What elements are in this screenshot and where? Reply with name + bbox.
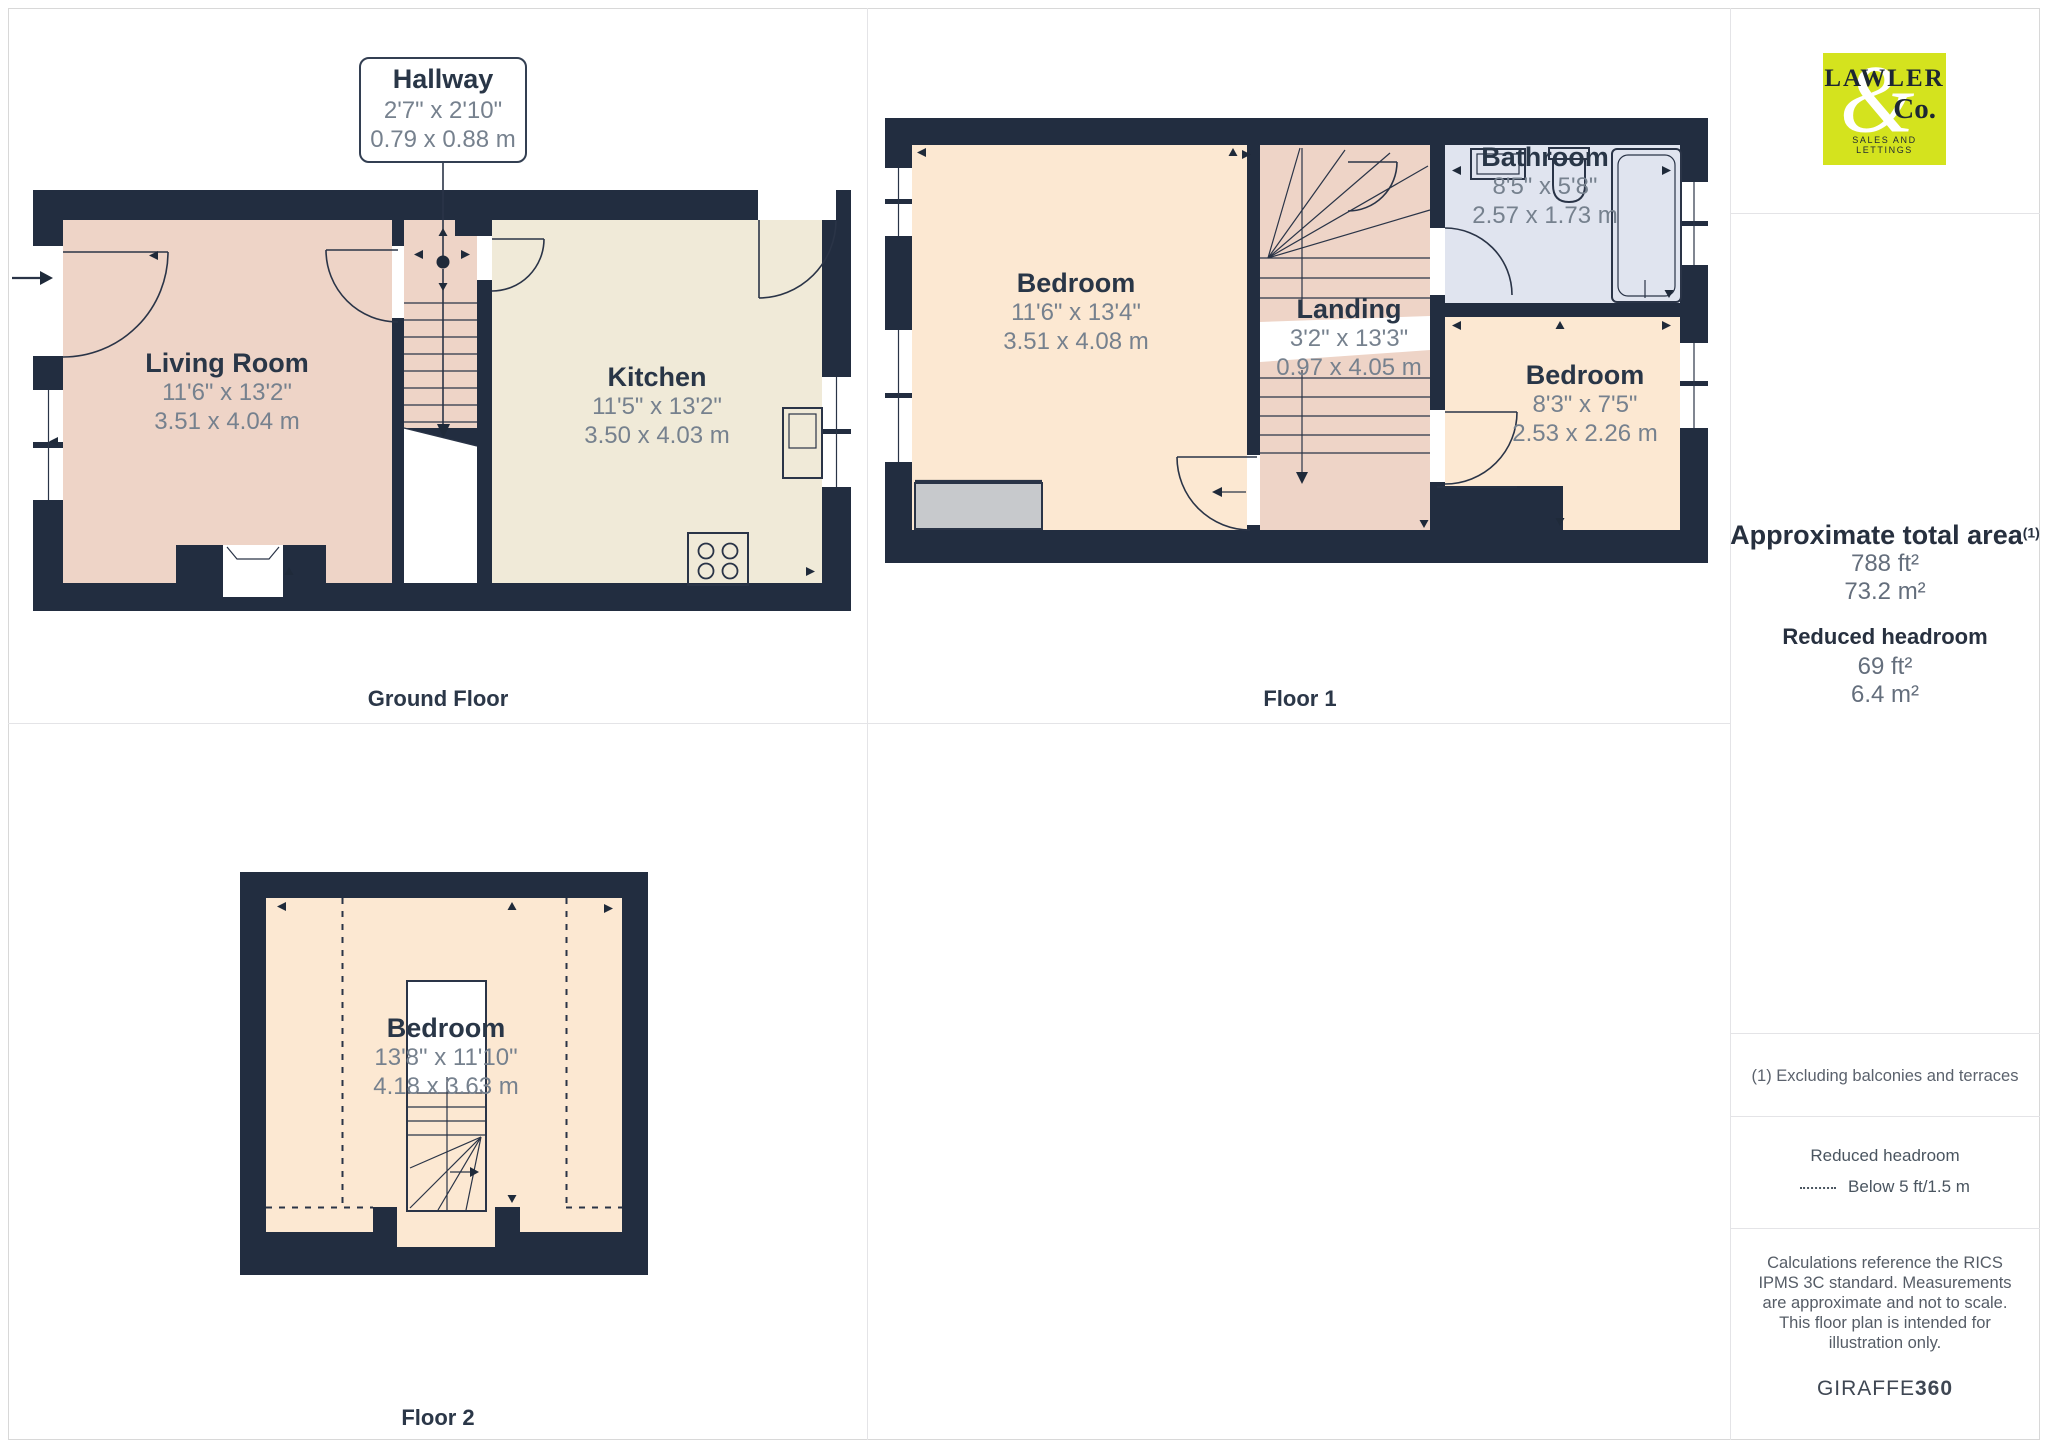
floor-title-1: Floor 1 [1263,686,1336,712]
reduced-m: 6.4 m² [1851,681,1919,709]
front-door-opening [33,246,63,356]
giraffe360-brand: GIRAFFE360 [1817,1377,1953,1401]
bedroom2-door-opening [1430,410,1445,482]
logo-co: Co. [1893,93,1936,126]
dormer-roof [915,483,1042,529]
hallway-dims-ft: 2'7" x 2'10" [361,96,525,125]
legend-value: Below 5 ft/1.5 m [1848,1177,1970,1196]
agency-logo: & LAWLER Co. SALES AND LETTINGS [1823,53,1946,165]
room-label-bedroom-1: Bedroom 11'6" x 13'4" 3.51 x 4.08 m [1003,268,1148,356]
back-door-opening [758,190,836,220]
bathroom-door-opening [1430,228,1445,295]
dotted-line-icon [1800,1187,1836,1189]
hallway-callout: Hallway 2'7" x 2'10" 0.79 x 0.88 m [359,57,527,163]
chimney-breast-floor1 [1433,486,1563,530]
floor-title-2: Floor 2 [401,1405,474,1431]
room-label-bathroom: Bathroom 8'5" x 5'8" 2.57 x 1.73 m [1472,142,1617,230]
room-label-landing: Landing 3'2" x 13'3" 0.97 x 4.05 m [1276,294,1421,382]
hallway-dims-m: 0.79 x 0.88 m [361,125,525,154]
floorplan-graphics [0,0,2048,1448]
kitchen-door-opening [477,236,492,280]
room-label-bedroom-2: Bedroom 8'3" x 7'5" 2.53 x 2.26 m [1512,360,1657,448]
room-label-bedroom-3: Bedroom 13'8" x 11'10" 4.18 x 3.63 m [373,1013,518,1101]
living-door-opening [392,246,404,318]
disclaimer-text: Calculations reference the RICS IPMS 3C … [1757,1253,2013,1353]
floor-title-ground: Ground Floor [368,686,509,712]
logo-tagline: SALES AND LETTINGS [1823,135,1946,155]
area-title-row: Approximate total area(1) [1730,520,2040,551]
floorplan-page: Hallway 2'7" x 2'10" 0.79 x 0.88 m Livin… [0,0,2048,1448]
hallway-name: Hallway [361,63,525,96]
footnote-balconies: (1) Excluding balconies and terraces [1752,1067,2019,1086]
area-title-footnote: (1) [2023,525,2040,541]
area-ft: 788 ft² [1851,550,1919,578]
room-label-living-room: Living Room 11'6" x 13'2" 3.51 x 4.04 m [145,348,309,436]
bedroom1-door-opening [1247,455,1260,525]
reduced-ft: 69 ft² [1858,653,1913,681]
room-label-kitchen: Kitchen 11'5" x 13'2" 3.50 x 4.03 m [584,362,729,450]
area-title: Approximate total area [1730,520,2023,550]
legend-row: Below 5 ft/1.5 m [1800,1177,1970,1197]
legend-title: Reduced headroom [1810,1146,1959,1166]
reduced-headroom-title: Reduced headroom [1782,624,1987,650]
stairs-ground [404,286,477,428]
area-m: 73.2 m² [1844,578,1925,606]
logo-word: LAWLER [1823,65,1946,93]
understairs-void [404,428,477,583]
